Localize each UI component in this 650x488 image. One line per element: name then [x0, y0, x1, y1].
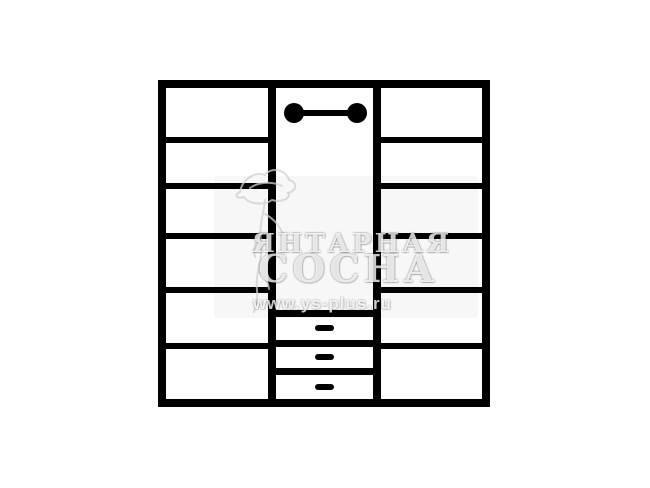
left-shelf — [166, 137, 268, 143]
right-shelf — [381, 343, 482, 349]
right-shelf — [381, 233, 482, 239]
left-shelf — [166, 343, 268, 349]
page-background: ЯНТАРНАЯ СОСНА www.ys-plus.ru — [0, 0, 650, 488]
drawer-handle — [315, 384, 334, 390]
divider-right — [373, 88, 381, 399]
right-shelf — [381, 287, 482, 293]
wardrobe-outline — [158, 80, 490, 407]
drawer-divider — [276, 340, 373, 347]
drawer-top-shelf — [276, 310, 373, 317]
left-shelf — [166, 233, 268, 239]
hanging-rod — [294, 110, 357, 116]
right-shelf — [381, 183, 482, 189]
left-shelf — [166, 183, 268, 189]
drawer-divider — [276, 368, 373, 375]
right-shelf — [381, 137, 482, 143]
left-shelf — [166, 287, 268, 293]
drawer-handle — [315, 325, 334, 331]
drawer-handle — [315, 354, 334, 360]
divider-left — [268, 88, 276, 399]
